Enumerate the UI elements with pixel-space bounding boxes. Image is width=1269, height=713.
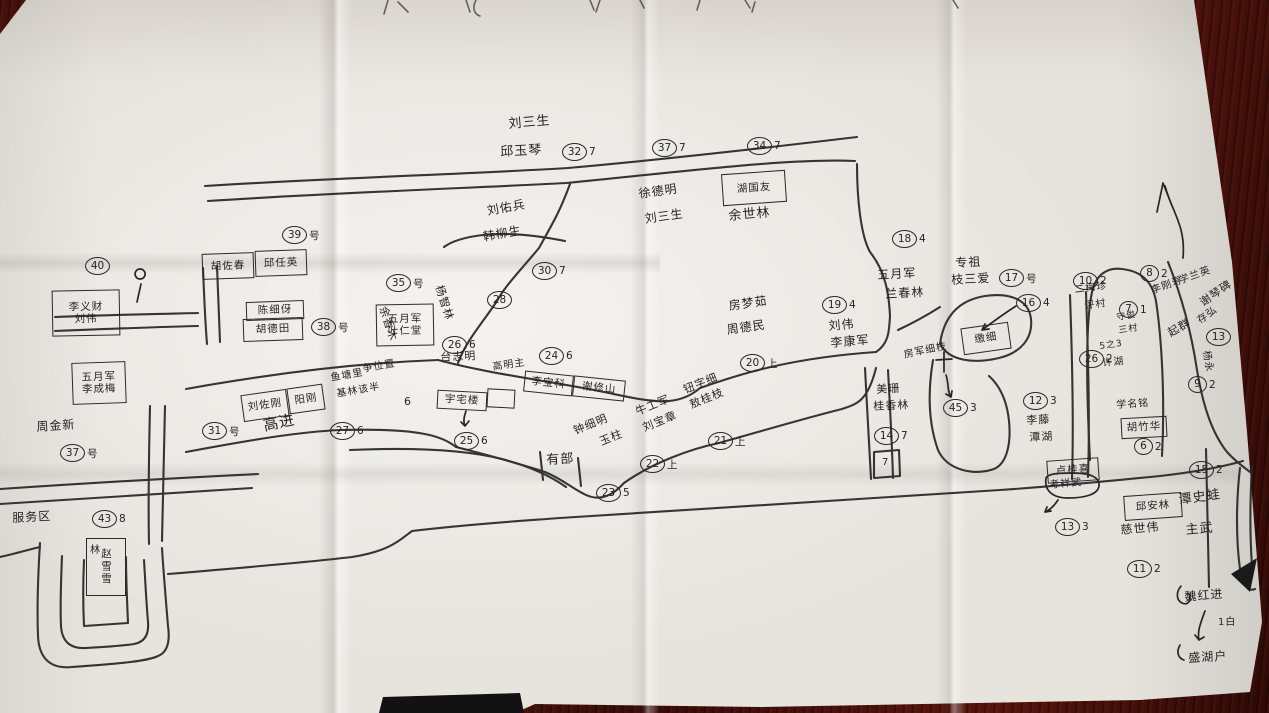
number-marker: 347 <box>747 137 781 155</box>
handwritten-label: 主武 <box>1185 522 1214 537</box>
number-marker: 37号 <box>60 444 98 462</box>
handwritten-label: 五月军 <box>877 267 917 281</box>
house-box-name: 叶仁堂 <box>388 325 423 338</box>
number-marker: 262 <box>1079 350 1113 368</box>
circled-number: 38 <box>311 318 336 336</box>
circled-number: 7 <box>1119 301 1138 318</box>
marker-suffix: 上 <box>735 434 746 449</box>
cut-off-title-strokes <box>384 0 958 16</box>
house-box: 五月军李成梅 <box>71 361 126 405</box>
marker-suffix: 6 <box>566 350 573 362</box>
marker-suffix: 号 <box>309 228 320 243</box>
number-marker: 20上 <box>740 354 778 372</box>
marker-suffix: 7 <box>901 430 908 442</box>
circled-number: 26 <box>442 336 467 354</box>
number-marker: 123 <box>1023 392 1057 410</box>
handwritten-label: 枝三爱 <box>951 272 991 286</box>
number-marker: 246 <box>539 347 573 365</box>
number-marker: 377 <box>652 139 686 157</box>
location-pin-icon <box>135 269 145 302</box>
marker-suffix: 1 <box>1140 304 1147 316</box>
marker-suffix: 4 <box>919 233 926 245</box>
number-marker: 147 <box>874 427 908 445</box>
house-box-name: 刘佐刚 <box>247 397 283 414</box>
handwritten-label: 1白 <box>1218 618 1236 628</box>
number-marker: 22上 <box>640 455 678 473</box>
house-box: 卢桂喜 <box>1046 457 1099 484</box>
number-marker: 92 <box>1188 376 1216 393</box>
circled-number: 21 <box>708 432 733 450</box>
handwritten-label: 服务区 <box>12 510 52 524</box>
number-marker: 184 <box>892 230 926 248</box>
circled-number: 15 <box>1189 461 1214 479</box>
circled-number: 17 <box>999 269 1024 287</box>
circled-number: 40 <box>85 257 110 275</box>
handwritten-label: 邱玉琴 <box>500 144 543 159</box>
house-box: 赵雪雪 <box>86 538 126 596</box>
house-box: 宇宅楼 <box>437 390 488 412</box>
house-box-name: 邱任英 <box>264 256 299 269</box>
handwritten-label: 专祖 <box>955 256 982 269</box>
handwritten-label: 慈世伟 <box>1120 521 1160 536</box>
number-marker: 17号 <box>999 269 1037 287</box>
ink-blot <box>1231 558 1257 592</box>
marker-suffix: 3 <box>1082 521 1089 533</box>
number-marker: 39号 <box>282 226 320 244</box>
circled-number: 13 <box>1055 518 1080 536</box>
house-box-name: 刘伟 <box>75 313 98 325</box>
circled-number: 10 <box>1073 272 1098 290</box>
circled-number: 24 <box>539 347 564 365</box>
handwritten-label: 有部 <box>546 453 575 467</box>
house-box: 邱任英 <box>255 249 308 277</box>
bubble-arrow-icon <box>1045 500 1058 512</box>
marker-suffix: 6 <box>469 339 476 351</box>
circled-number: 27 <box>330 422 355 440</box>
house-box-name: 宇宅楼 <box>444 394 479 408</box>
house-box: 胡佐春 <box>202 252 255 280</box>
handwritten-label: 周金新 <box>36 418 76 433</box>
house-box: 五月军叶仁堂 <box>376 303 435 346</box>
arrow-down-icon <box>1195 611 1205 640</box>
house-box: 胡竹华 <box>1120 416 1167 439</box>
number-marker: 31号 <box>202 422 240 440</box>
number-marker: 152 <box>1189 461 1223 479</box>
number-marker: 256 <box>454 432 488 450</box>
marker-suffix: 号 <box>413 276 424 291</box>
marker-suffix: 5 <box>623 487 630 499</box>
circled-number: 23 <box>596 484 621 502</box>
house-box-name: 李义财 <box>69 301 104 314</box>
circled-number: 31 <box>202 422 227 440</box>
marker-suffix: 7 <box>774 140 781 152</box>
marker-suffix: 2 <box>1161 268 1168 280</box>
marker-suffix: 上 <box>667 457 678 472</box>
arrow-to-45-icon <box>946 375 952 397</box>
number-marker: 28 <box>487 291 512 309</box>
handwritten-label: 7 <box>882 458 889 468</box>
house-box-name: 陈细伢 <box>258 304 293 317</box>
circled-number: 6 <box>1134 438 1153 455</box>
circled-number: 32 <box>562 143 587 161</box>
circled-number: 37 <box>60 444 85 462</box>
marker-suffix: 号 <box>338 320 349 335</box>
number-marker: 102 <box>1073 272 1107 290</box>
handwritten-label: 余世林 <box>728 206 771 223</box>
circled-number: 11 <box>1127 560 1152 578</box>
number-marker: 62 <box>1134 438 1162 455</box>
marker-suffix: 号 <box>229 424 240 439</box>
house-box-name: 五月军 <box>388 313 423 326</box>
circled-number: 13 <box>1206 328 1231 346</box>
handwritten-label: 盛湖户 <box>1188 650 1228 664</box>
marker-suffix: 3 <box>1050 395 1057 407</box>
number-marker: 133 <box>1055 518 1089 536</box>
marker-suffix: 4 <box>849 299 856 311</box>
marker-suffix: 6 <box>481 435 488 447</box>
marker-suffix: 8 <box>119 513 126 525</box>
number-marker: 266 <box>442 336 476 354</box>
handwritten-label: 刘伟 <box>828 318 855 332</box>
circled-number: 30 <box>532 262 557 280</box>
roads <box>0 137 1255 667</box>
number-marker: 40 <box>85 257 110 275</box>
house-box: 李义财刘伟 <box>52 289 121 336</box>
marker-suffix: 3 <box>970 402 977 414</box>
marker-suffix: 2 <box>1209 379 1216 391</box>
circled-number: 9 <box>1188 376 1207 393</box>
house-box: 邱安林 <box>1123 492 1183 521</box>
number-marker: 235 <box>596 484 630 502</box>
handwritten-label: 李康军 <box>830 334 870 349</box>
circled-number: 19 <box>822 296 847 314</box>
circled-number: 12 <box>1023 392 1048 410</box>
marker-suffix: 2 <box>1100 275 1107 287</box>
north-arrow-icon <box>1157 183 1183 258</box>
circled-number: 37 <box>652 139 677 157</box>
number-marker: 438 <box>92 510 126 528</box>
circled-number: 8 <box>1140 265 1159 282</box>
number-marker: 38号 <box>311 318 349 336</box>
number-marker: 35号 <box>386 274 424 292</box>
handwritten-label: 6 <box>404 396 412 407</box>
marker-suffix: 上 <box>767 356 778 371</box>
house-box-name: 胡德田 <box>256 323 291 336</box>
number-marker: 453 <box>943 399 977 417</box>
number-marker: 82 <box>1140 265 1168 282</box>
marker-suffix: 2 <box>1154 563 1161 575</box>
circled-number: 34 <box>747 137 772 155</box>
number-marker: 112 <box>1127 560 1161 578</box>
circled-number: 16 <box>1016 294 1041 312</box>
house-box: 阳刚 <box>286 384 325 415</box>
circled-number: 14 <box>874 427 899 445</box>
house-box-name: 李宝科 <box>531 376 567 392</box>
circled-number: 39 <box>282 226 307 244</box>
handwritten-label: 魏红进 <box>1184 588 1224 603</box>
house-box-name: 李成梅 <box>82 382 117 395</box>
circled-number: 28 <box>487 291 512 309</box>
number-marker: 21上 <box>708 432 746 450</box>
handwritten-label: 李藤 <box>1026 414 1051 426</box>
house-box-name: 缴细 <box>974 331 998 346</box>
number-marker: 307 <box>532 262 566 280</box>
marker-suffix: 7 <box>679 142 686 154</box>
marker-suffix: 2 <box>1155 441 1162 453</box>
circled-number: 35 <box>386 274 411 292</box>
marker-suffix: 4 <box>1043 297 1050 309</box>
house-box: 胡德田 <box>243 317 304 342</box>
marker-suffix: 号 <box>1026 271 1037 286</box>
house-box-name: 谢修山 <box>581 381 617 397</box>
marker-suffix: 2 <box>1106 353 1113 365</box>
number-marker: 194 <box>822 296 856 314</box>
house-box-name: 卢桂喜 <box>1055 463 1090 477</box>
handwritten-label: 潭湖 <box>1029 431 1054 443</box>
marker-suffix: 7 <box>589 146 596 158</box>
handwritten-label: 桂香林 <box>873 399 910 412</box>
marker-suffix: 7 <box>559 265 566 277</box>
number-marker: 327 <box>562 143 596 161</box>
number-marker: 71 <box>1119 301 1147 318</box>
number-marker: 164 <box>1016 294 1050 312</box>
circled-number: 20 <box>740 354 765 372</box>
number-marker: 13 <box>1206 328 1231 346</box>
handwritten-label: 美珊 <box>876 383 901 395</box>
handwritten-label: 刘三生 <box>508 114 551 131</box>
marker-suffix: 6 <box>357 425 364 437</box>
house-box: 湖国友 <box>721 170 787 206</box>
number-marker: 276 <box>330 422 364 440</box>
house-box-name: 湖国友 <box>736 181 771 195</box>
circled-number: 22 <box>640 455 665 473</box>
house-box-name: 赵雪雪 <box>100 548 112 586</box>
house-box <box>487 388 516 408</box>
house-box-name: 阳刚 <box>294 391 318 406</box>
circled-number: 25 <box>454 432 479 450</box>
squiggle <box>1178 645 1184 660</box>
circled-number: 18 <box>892 230 917 248</box>
circled-number: 43 <box>92 510 117 528</box>
house-box-name: 胡佐春 <box>211 259 246 272</box>
house-box-name: 胡竹华 <box>1126 421 1161 435</box>
down-arrow-icon <box>461 411 469 426</box>
circled-number: 45 <box>943 399 968 417</box>
marker-suffix: 号 <box>87 446 98 461</box>
marker-suffix: 2 <box>1216 464 1223 476</box>
handwritten-label: 兰春林 <box>885 286 925 300</box>
photo-of-hand-drawn-map: 刘三生邱玉琴刘佑兵韩柳生徐德明刘三生余世林周金新服务区高进鱼塘里争位置基林该半6… <box>0 0 1269 713</box>
circled-number: 26 <box>1079 350 1104 368</box>
house-box-name: 邱安林 <box>1135 499 1170 513</box>
